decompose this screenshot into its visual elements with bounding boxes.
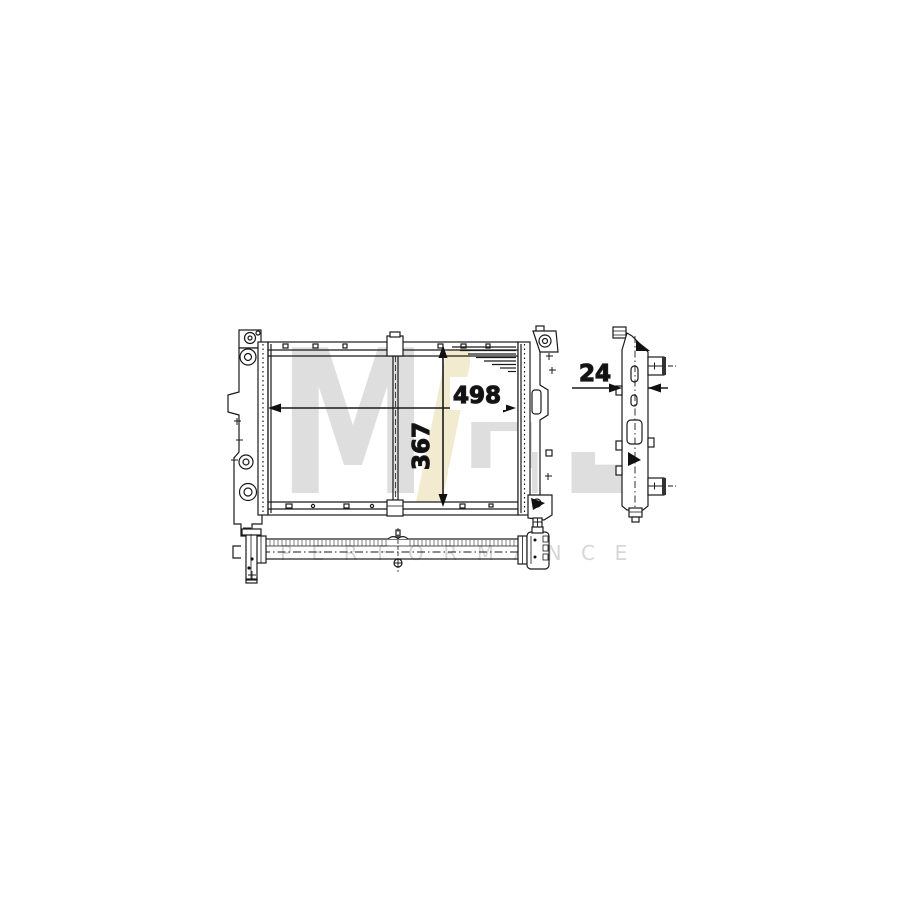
product-image-canvas: M H L PERFORMANCE xyxy=(0,0,900,900)
watermark-letter-m: M xyxy=(278,308,428,541)
depth-dimension-label: 24 xyxy=(579,361,611,387)
left-tank xyxy=(258,342,268,515)
right-tank xyxy=(518,342,530,515)
watermark-performance-text: PERFORMANCE xyxy=(280,541,647,565)
technical-drawing: M H L PERFORMANCE xyxy=(0,0,900,900)
height-dimension-label: 367 xyxy=(409,422,435,470)
width-dimension-label: 498 xyxy=(453,383,501,409)
